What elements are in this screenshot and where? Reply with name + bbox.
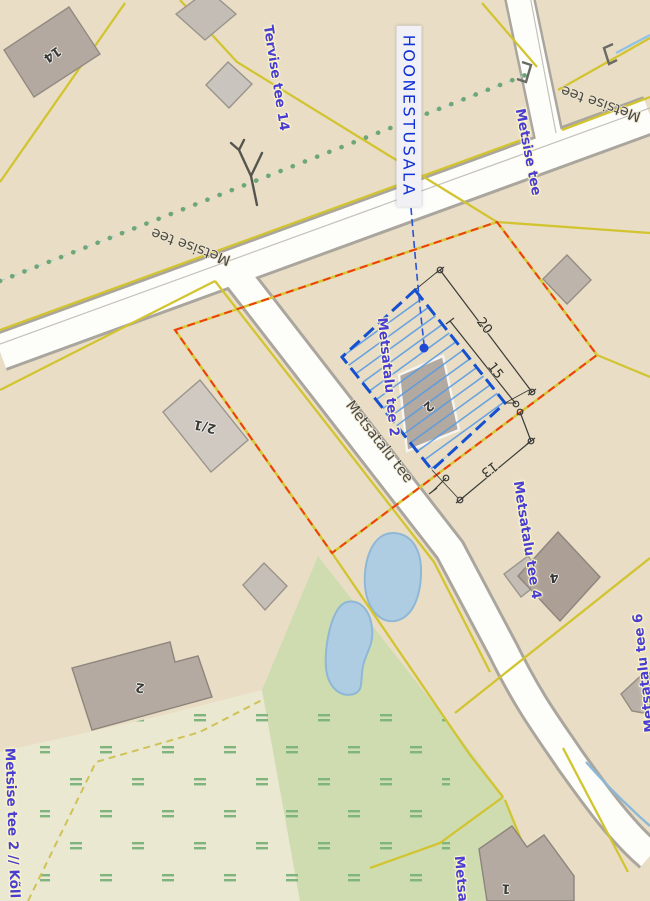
- leader-dot: [420, 344, 429, 353]
- map-viewport[interactable]: HOONESTUSALA Metsise tee Metsise tee Met…: [0, 0, 650, 901]
- map-canvas[interactable]: [0, 0, 650, 901]
- marsh-pattern-overlay: [40, 710, 450, 901]
- pond: [365, 533, 421, 621]
